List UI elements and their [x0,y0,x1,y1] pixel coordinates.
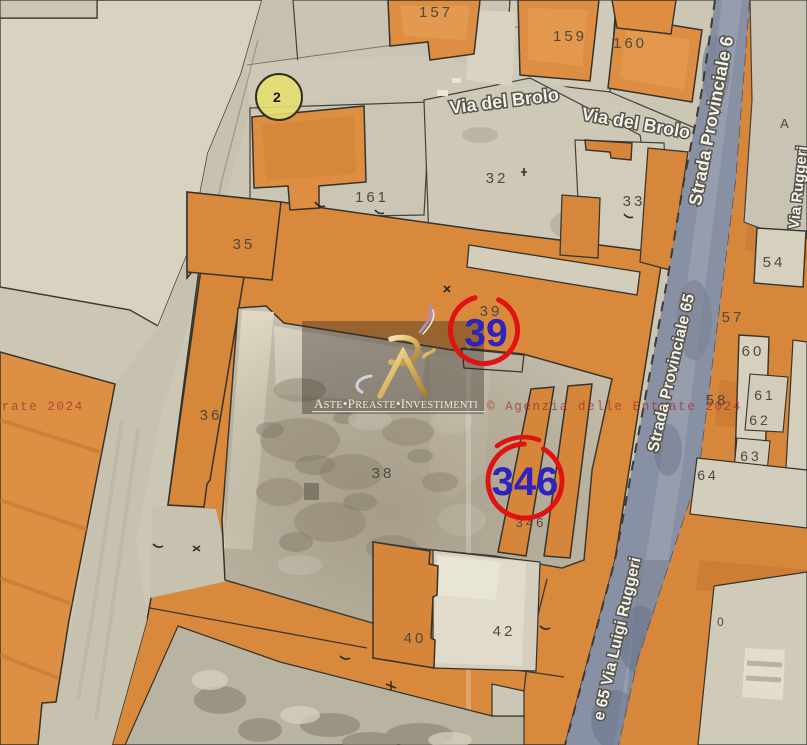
svg-text:38: 38 [372,465,395,482]
svg-text:32: 32 [486,170,509,187]
svg-text:161: 161 [355,189,389,206]
svg-text:40: 40 [404,630,427,647]
svg-text:63: 63 [740,448,762,464]
svg-text:36: 36 [200,407,223,424]
svg-text:39: 39 [464,312,507,355]
svg-text:157: 157 [419,4,453,21]
svg-text:346: 346 [492,460,559,504]
svg-text:60: 60 [742,343,765,360]
svg-text:42: 42 [493,623,516,640]
svg-text:© Agenzia delle Entrate 2024: © Agenzia delle Entrate 2024 [487,400,742,414]
svg-text:35: 35 [233,236,256,253]
svg-text:2: 2 [273,89,281,105]
svg-text:0: 0 [717,615,724,629]
svg-text:54: 54 [763,254,786,271]
svg-text:160: 160 [613,35,647,52]
svg-text:159: 159 [553,28,587,45]
svg-text:A: A [780,116,792,131]
svg-text:62: 62 [749,412,771,428]
svg-text:64: 64 [697,467,719,483]
svg-text:© Agenzia delle Entrate 2024: © Agenzia delle Entrate 2024 [0,400,84,414]
svg-text:57: 57 [722,309,745,326]
svg-text:33: 33 [623,193,646,210]
svg-text:61: 61 [754,387,776,403]
